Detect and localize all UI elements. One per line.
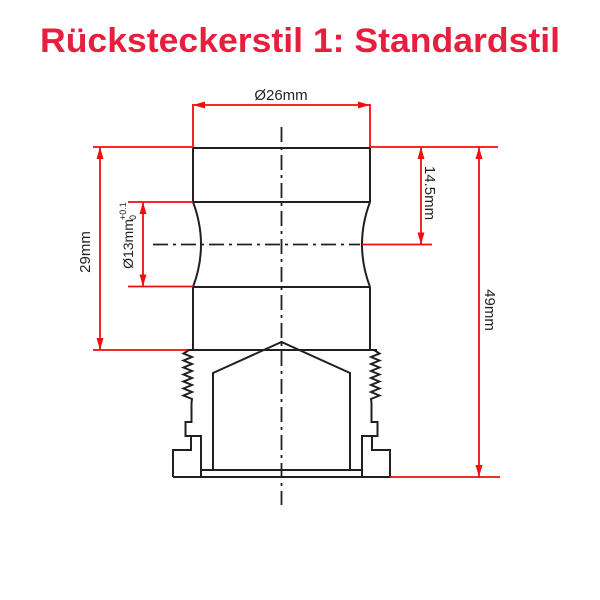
skirt-step-right <box>362 403 390 477</box>
arrow-down-icon <box>476 465 483 477</box>
arrow-up-icon <box>418 147 425 159</box>
arrow-up-icon <box>140 202 147 214</box>
skirt-step-left <box>173 403 201 477</box>
page-title: Rücksteckerstil 1: Standardstil <box>40 22 560 60</box>
arrow-down-icon <box>97 338 104 350</box>
arrow-left-icon <box>193 102 205 109</box>
dim-label-diameter-groove: Ø13mm +0.1 0 <box>118 202 138 269</box>
dimension-depth-to-center: 14.5mm <box>362 147 438 245</box>
dim-label-depth-to-center: 14.5mm <box>421 166 438 220</box>
arrow-up-icon <box>97 147 104 159</box>
part-outline <box>153 127 390 505</box>
dim-label-diameter-top: Ø26mm <box>254 87 307 104</box>
dimension-height-total: 49mm <box>390 147 500 477</box>
dim-label-height-total: 49mm <box>481 289 498 331</box>
arrow-up-icon <box>476 147 483 159</box>
dim-label-tolerance-upper: +0.1 <box>118 202 128 220</box>
dim-label-diameter-groove-main: Ø13mm <box>120 219 136 269</box>
thread-right <box>371 350 380 403</box>
arrow-down-icon <box>418 233 425 245</box>
dim-label-tolerance-lower: 0 <box>128 215 138 220</box>
drawing-page: Rücksteckerstil 1: Standardstil <box>0 0 600 600</box>
technical-drawing-canvas: Rücksteckerstil 1: Standardstil <box>0 0 600 600</box>
arrow-down-icon <box>140 275 147 287</box>
thread-left <box>184 350 193 403</box>
dim-label-height-upper: 29mm <box>77 231 94 273</box>
arrow-right-icon <box>358 102 370 109</box>
